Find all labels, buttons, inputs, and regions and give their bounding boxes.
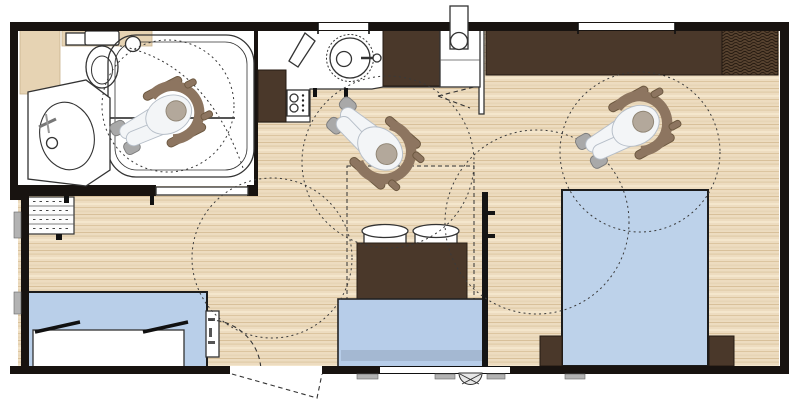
wall-tick <box>150 196 154 205</box>
entry-door-opening <box>230 366 322 374</box>
master-bedroom <box>540 190 734 366</box>
twin-beds <box>33 330 184 368</box>
exterior-step <box>565 374 585 379</box>
wall-tick <box>488 234 495 238</box>
drain <box>47 138 58 149</box>
wardrobe-hanging-space <box>722 30 778 75</box>
counter-strip <box>20 30 60 94</box>
window-kitchen <box>318 23 369 30</box>
sofa-seat-edge <box>341 350 482 361</box>
wall-left-upper <box>10 22 18 198</box>
washbasin <box>28 80 110 186</box>
shelf-unit <box>28 197 74 240</box>
wall-tick <box>313 88 317 97</box>
chair <box>362 225 408 245</box>
wall-left-lower <box>21 196 29 372</box>
nightstand-right <box>709 336 734 366</box>
wall-tick <box>56 234 62 240</box>
window-bedroom <box>578 23 675 30</box>
wall-tick <box>64 196 69 203</box>
exterior-step <box>435 374 455 379</box>
kitchen-counter-block <box>383 28 440 86</box>
exterior-step <box>357 374 378 379</box>
wall-right <box>780 22 789 374</box>
bathroom-wall-bottom <box>18 185 156 196</box>
window-left-upper <box>14 212 21 238</box>
exterior-half-step <box>459 373 482 385</box>
floorplan-canvas <box>0 0 800 411</box>
nightstand-left <box>540 336 562 366</box>
toilet <box>85 31 119 88</box>
wall-tick <box>344 88 348 97</box>
kitchen-counter-left <box>258 70 286 122</box>
double-bed <box>562 190 708 366</box>
water-heater <box>450 6 468 50</box>
shower-head <box>126 37 141 52</box>
bathroom-sliding-door <box>156 187 248 195</box>
wardrobe <box>486 30 778 75</box>
cabinet-handle-mark <box>209 328 212 337</box>
entry-door-swing <box>232 374 322 398</box>
cabinet-shelf-mark <box>208 341 215 344</box>
table <box>357 243 467 303</box>
partition-wall <box>482 192 488 367</box>
window-left-lower <box>14 292 21 314</box>
window-living <box>380 367 510 374</box>
chair <box>413 225 459 245</box>
cooktop <box>287 90 309 116</box>
wall-tick <box>488 211 495 215</box>
tall-cabinet <box>206 311 219 357</box>
wardrobe-body <box>486 30 722 75</box>
exterior-step <box>487 374 505 379</box>
